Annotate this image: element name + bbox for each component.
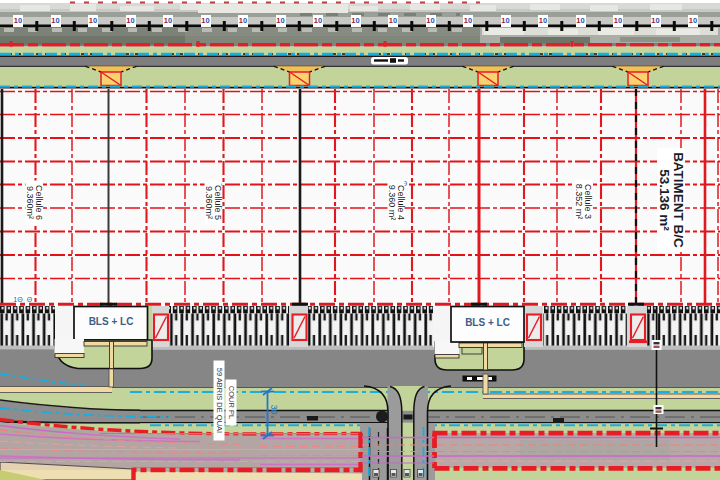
svg-text:Θ: Θ (27, 296, 33, 303)
svg-text:1Θ: 1Θ (13, 296, 23, 303)
